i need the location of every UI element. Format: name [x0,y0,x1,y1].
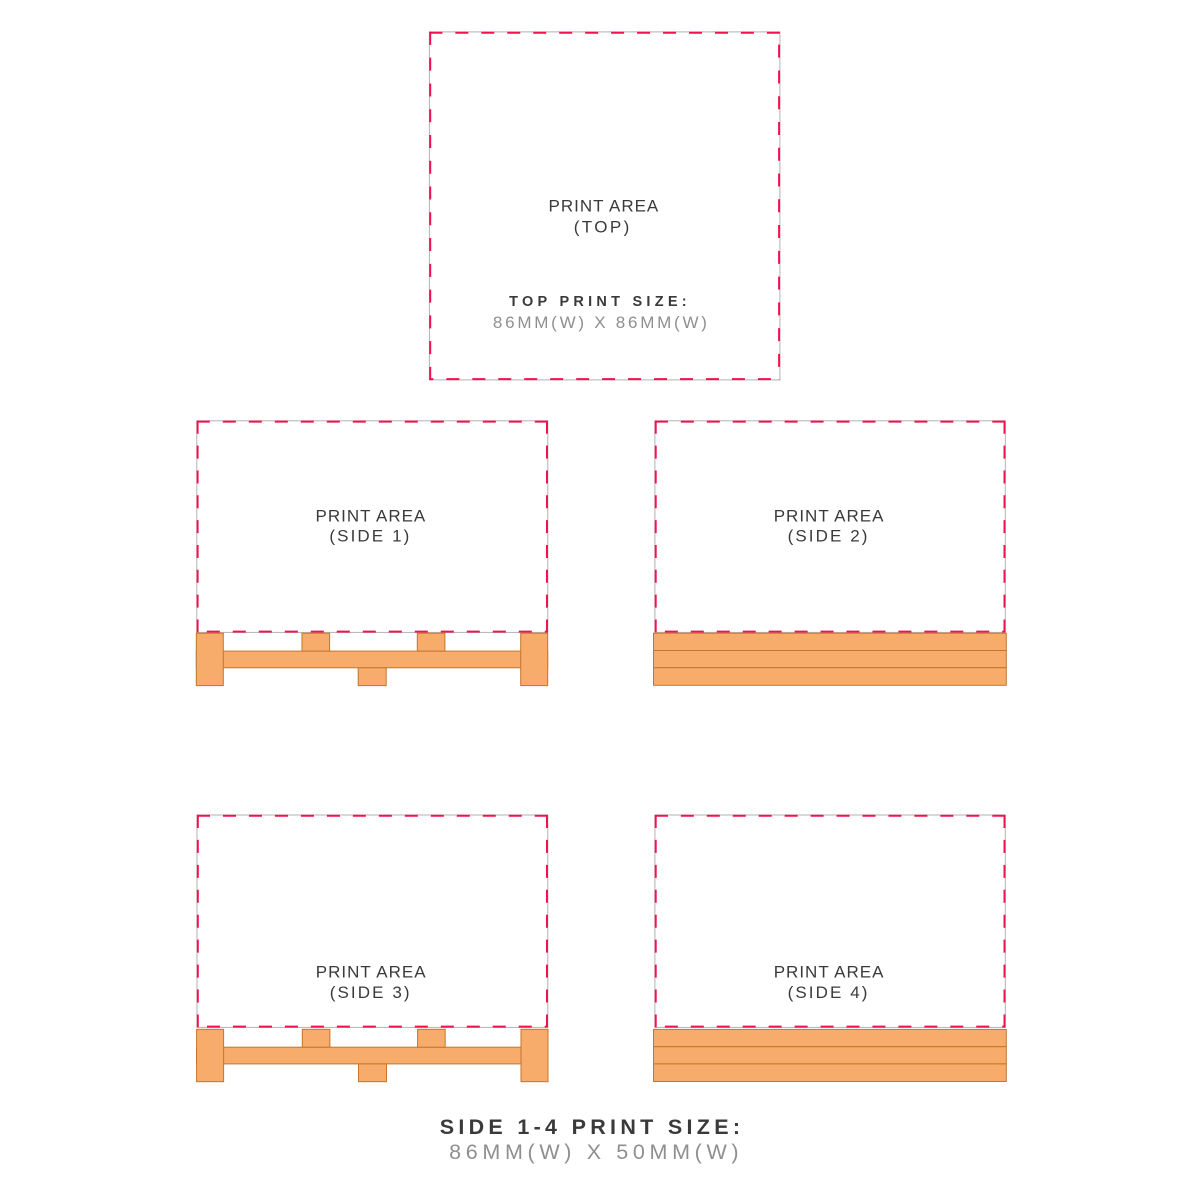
svg-text:PRINT AREA: PRINT AREA [774,506,885,525]
svg-text:86MM(W) X 50MM(W): 86MM(W) X 50MM(W) [449,1140,743,1164]
svg-text:PRINT AREA: PRINT AREA [549,197,660,216]
svg-text:(SIDE 2): (SIDE 2) [788,526,870,545]
svg-text:TOP PRINT SIZE:: TOP PRINT SIZE: [509,294,691,310]
svg-text:(TOP): (TOP) [574,218,632,237]
svg-text:PRINT AREA: PRINT AREA [774,963,885,982]
svg-text:PRINT AREA: PRINT AREA [316,506,427,525]
svg-text:(SIDE 1): (SIDE 1) [329,526,411,545]
svg-text:86MM(W) X 86MM(W): 86MM(W) X 86MM(W) [493,313,710,332]
svg-text:SIDE 1-4 PRINT SIZE:: SIDE 1-4 PRINT SIZE: [440,1115,745,1139]
svg-text:PRINT AREA: PRINT AREA [316,963,427,982]
svg-text:(SIDE 3): (SIDE 3) [330,983,412,1002]
svg-text:(SIDE 4): (SIDE 4) [788,983,870,1002]
